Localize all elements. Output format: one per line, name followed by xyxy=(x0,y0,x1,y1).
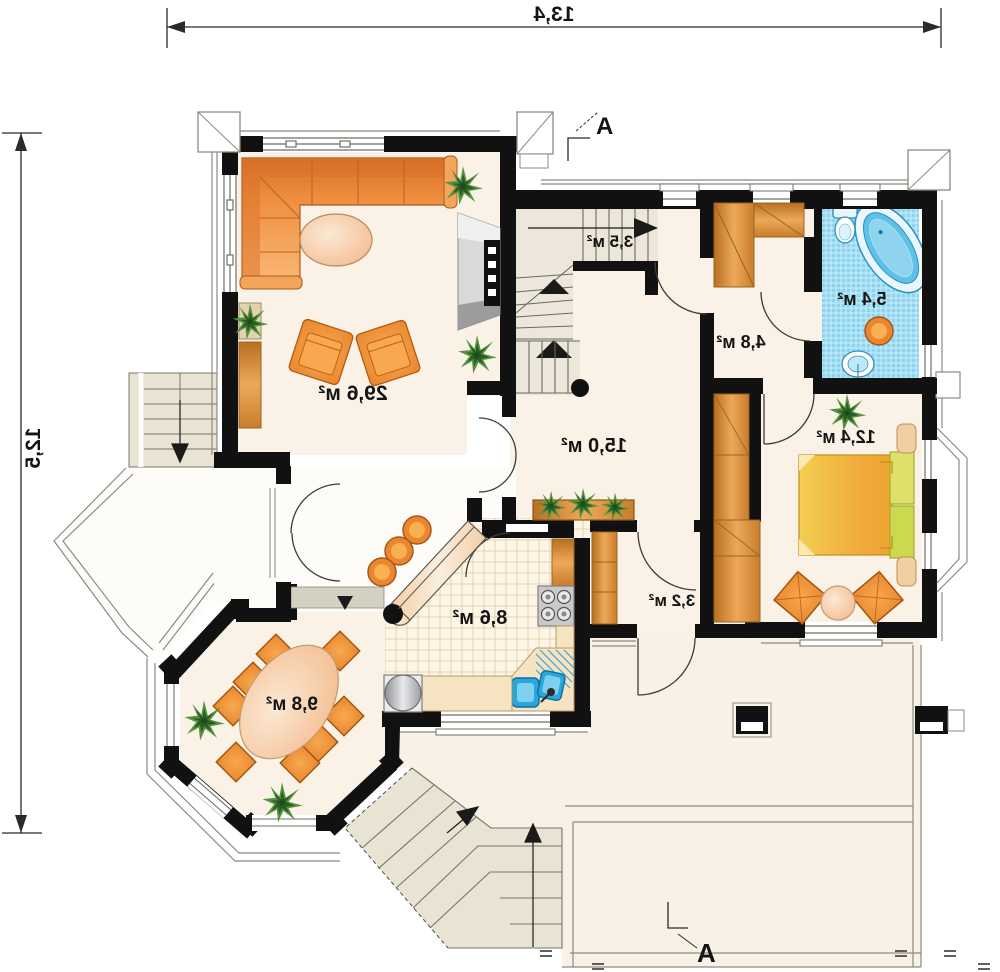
svg-text:A: A xyxy=(596,113,613,140)
svg-text:12,5: 12,5 xyxy=(22,428,45,469)
svg-text:8,6 м²: 8,6 м² xyxy=(452,607,507,629)
svg-text:13,4: 13,4 xyxy=(533,3,574,26)
svg-text:4,8 м²: 4,8 м² xyxy=(716,332,765,352)
svg-text:3,2 м²: 3,2 м² xyxy=(648,591,695,610)
svg-text:3,5 м²: 3,5 м² xyxy=(586,232,633,251)
svg-text:A: A xyxy=(697,938,716,968)
svg-text:15,0 м²: 15,0 м² xyxy=(561,435,627,457)
svg-text:12,4 м²: 12,4 м² xyxy=(816,427,875,447)
svg-text:9,8 м²: 9,8 м² xyxy=(266,694,318,715)
svg-text:29,6 м²: 29,6 м² xyxy=(318,382,387,405)
svg-text:5,4 м²: 5,4 м² xyxy=(837,289,886,309)
